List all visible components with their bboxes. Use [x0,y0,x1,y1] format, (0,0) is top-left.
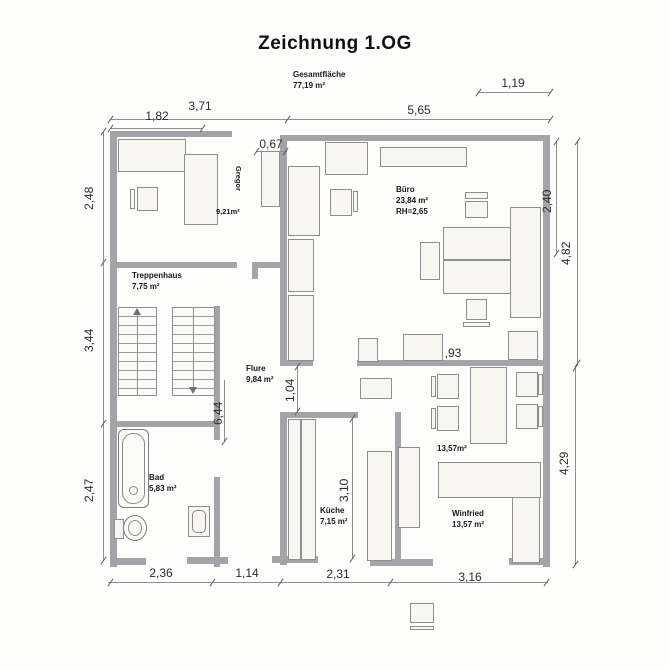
flure-area: 9,84 m² [246,375,274,386]
sink-basin [192,510,206,533]
kueche-area: 7,15 m² [320,517,348,528]
buero-chair-bottom-back [463,322,490,327]
room-label-bad: Bad 5,83 m² [149,473,177,495]
dim-label-2-47: 2,47 [82,450,96,530]
dim-line-1-04 [297,366,298,412]
buero-cabinet-top [325,142,368,175]
dim-label-1-14: 1,14 [221,566,273,580]
floorplan-sheet: Zeichnung 1.OG Gesamtfläche 77,19 m² [0,0,670,670]
wall-door-jamb [252,262,258,279]
dim-label-3-16: 3,16 [444,570,496,584]
winfried-chair-1 [437,374,459,399]
flure-name: Flure [246,364,274,375]
dim-line-left [103,131,104,561]
buero-bookcase-2 [288,239,314,292]
buero-small-desk [330,189,352,216]
room-label-winfried: Winfried 13,57 m² [452,509,484,531]
total-area-value: 77,19 m² [293,81,345,92]
wall-exterior-top-left [110,131,232,137]
dim-label-1-19: 1,19 [487,76,539,90]
dim-label-5-65: 5,65 [393,103,445,117]
dim-tick [573,561,579,569]
room-label-kueche: Küche 7,15 m² [320,506,348,528]
buero-side-rail [465,192,488,199]
gregor-chair [130,189,135,209]
wall-buero-bottom-b [357,360,550,366]
total-area-label: Gesamtfläche 77,19 m² [293,70,345,92]
dim-line-3-10 [352,418,353,559]
wall-kueche-top [280,412,358,418]
dim-label-2-40: 2,40 [540,162,554,240]
dim-label-3-44: 3,44 [82,300,96,380]
winfried-bed [438,462,541,498]
kueche-tall-cupboard [367,451,392,561]
buero-shelf-top [380,147,467,167]
gregor-shelf [118,139,186,172]
wall-central-upper [280,135,287,366]
room-label-buero: Büro 23,84 m² RH=2,65 [396,185,428,217]
dim-tick [101,557,107,565]
bathtub-symbol [118,429,149,508]
kueche-counter-a [288,419,301,560]
dim-label-2-31: 2,31 [312,567,364,581]
dim-label-1-04: 1,04 [283,368,297,412]
room-label-flure: Flure 9,84 m² [246,364,274,386]
total-area-caption: Gesamtfläche [293,70,345,81]
dim-line-4-29 [575,367,576,565]
wall-bottom-b [187,557,228,564]
dim-line-top-sub [110,128,202,129]
dim-tick [350,555,356,563]
dim-tick [548,89,554,97]
kueche-name: Küche [320,506,348,517]
winfried-area: 13,57 m² [452,520,484,531]
buero-chair-bottom [466,299,487,320]
bad-name: Bad [149,473,177,484]
dim-label-0-67: 0,67 [253,137,289,151]
buero-desk-lower [443,260,511,294]
buero-side-table [465,201,488,218]
bathtub-drain-icon [129,486,138,495]
legend-bar-symbol [410,626,434,630]
legend-box-symbol [410,603,434,623]
treppenhaus-area: 7,75 m² [132,282,182,293]
buero-bookcase-1 [288,166,320,236]
stair-arrow-down-icon [189,387,197,394]
flur-door-leaf [360,378,392,399]
sink-symbol [188,506,210,537]
wall-bad-right [214,477,220,567]
buero-door-leaf [358,338,378,362]
kueche-counter-b [301,419,316,560]
winfried-table [470,367,507,444]
dim-label-1-82: 1,82 [135,109,179,123]
winfried-cupboard [398,447,420,528]
bad-area: 5,83 m² [149,484,177,495]
dim-label-4-29: 4,29 [557,422,571,504]
winfried-chair-4-back [538,406,543,427]
dim-label-2-36: 2,36 [135,566,187,580]
page-title: Zeichnung 1.OG [0,33,670,55]
dim-label-6-44: 6,44 [211,385,225,441]
room-area-gregor: 9,21m² [216,207,240,217]
buero-small-chair [353,191,358,212]
wall-gregor-bottom-a [110,262,237,268]
dim-line-1-19 [478,92,550,93]
buero-desk-return [510,207,541,318]
room-label-treppenhaus: Treppenhaus 7,75 m² [132,271,182,293]
wall-exterior-left [110,131,117,567]
buero-desk-upper [443,227,511,260]
toilet-bowl-inner [128,520,142,536]
winfried-door-leaf [512,497,540,563]
winfried-chair-2 [437,406,459,431]
stair-walkline-right [193,308,194,388]
buero-room-height: RH=2,65 [396,207,428,218]
buero-chair-left [420,242,440,280]
buero-cabinet-bottom [508,331,538,360]
stair-arrow-up-icon [133,308,141,315]
gregor-wardrobe [184,154,218,225]
dim-tick [548,116,554,124]
dim-label-4-82: 4,82 [559,212,573,294]
winfried-chair-2-back [431,408,436,429]
wall-bottom-a [110,558,146,565]
winfried-chair-3 [516,372,538,397]
gregor-cabinet [261,151,280,207]
buero-area: 23,84 m² [396,196,428,207]
room-area-winfried-upper: 13,57m² [437,444,467,455]
dim-line-0-67 [256,151,285,152]
dim-label-3-71: 3,71 [178,99,222,113]
winfried-chair-4 [516,404,538,429]
winfried-chair-3-back [538,374,543,395]
dim-label-2-48: 2,48 [82,158,96,238]
toilet-bowl-symbol [123,515,147,541]
treppenhaus-name: Treppenhaus [132,271,182,282]
dim-label-0-93: ,93 [436,346,470,360]
stair-walkline-left [137,315,138,395]
wall-central-lower [280,412,287,565]
buero-bookcase-3 [288,295,314,361]
room-label-gregor: Gregor [233,166,243,191]
gregor-desk [137,187,158,211]
wall-exterior-top-right [287,135,550,141]
buero-name: Büro [396,185,428,196]
dim-tick [544,579,550,587]
winfried-name: Winfried [452,509,484,520]
dim-line-2-40 [556,141,557,253]
dim-line-4-82 [577,141,578,364]
wall-bad-top [110,421,220,427]
winfried-chair-1-back [431,376,436,397]
